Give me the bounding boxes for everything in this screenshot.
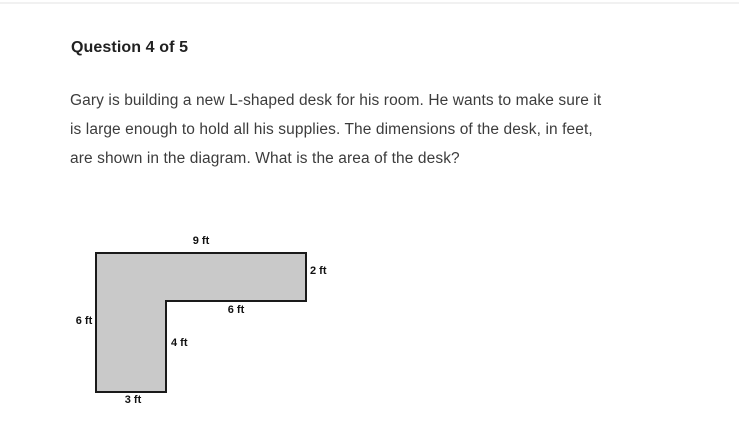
question-text-line: is large enough to hold all his supplies… [70,115,601,144]
question-text-line: are shown in the diagram. What is the ar… [70,144,601,173]
question-page: Question 4 of 5 Gary is building a new L… [0,0,739,426]
dimension-label-bottom: 3 ft [113,394,153,407]
l-shaped-desk-diagram: 9 ft 2 ft 6 ft 6 ft 4 ft 3 ft [60,230,380,426]
dimension-label-inner-vertical: 4 ft [171,337,188,350]
dimension-label-right: 2 ft [310,265,327,278]
question-progress-header: Question 4 of 5 [71,39,188,57]
top-divider [0,2,739,4]
dimension-label-inner-horizontal: 6 ft [216,304,256,317]
l-shape-polygon [95,252,308,394]
question-text-line: Gary is building a new L-shaped desk for… [70,86,601,115]
dimension-label-top: 9 ft [181,235,221,248]
question-text: Gary is building a new L-shaped desk for… [70,86,601,173]
dimension-label-left: 6 ft [64,315,104,328]
